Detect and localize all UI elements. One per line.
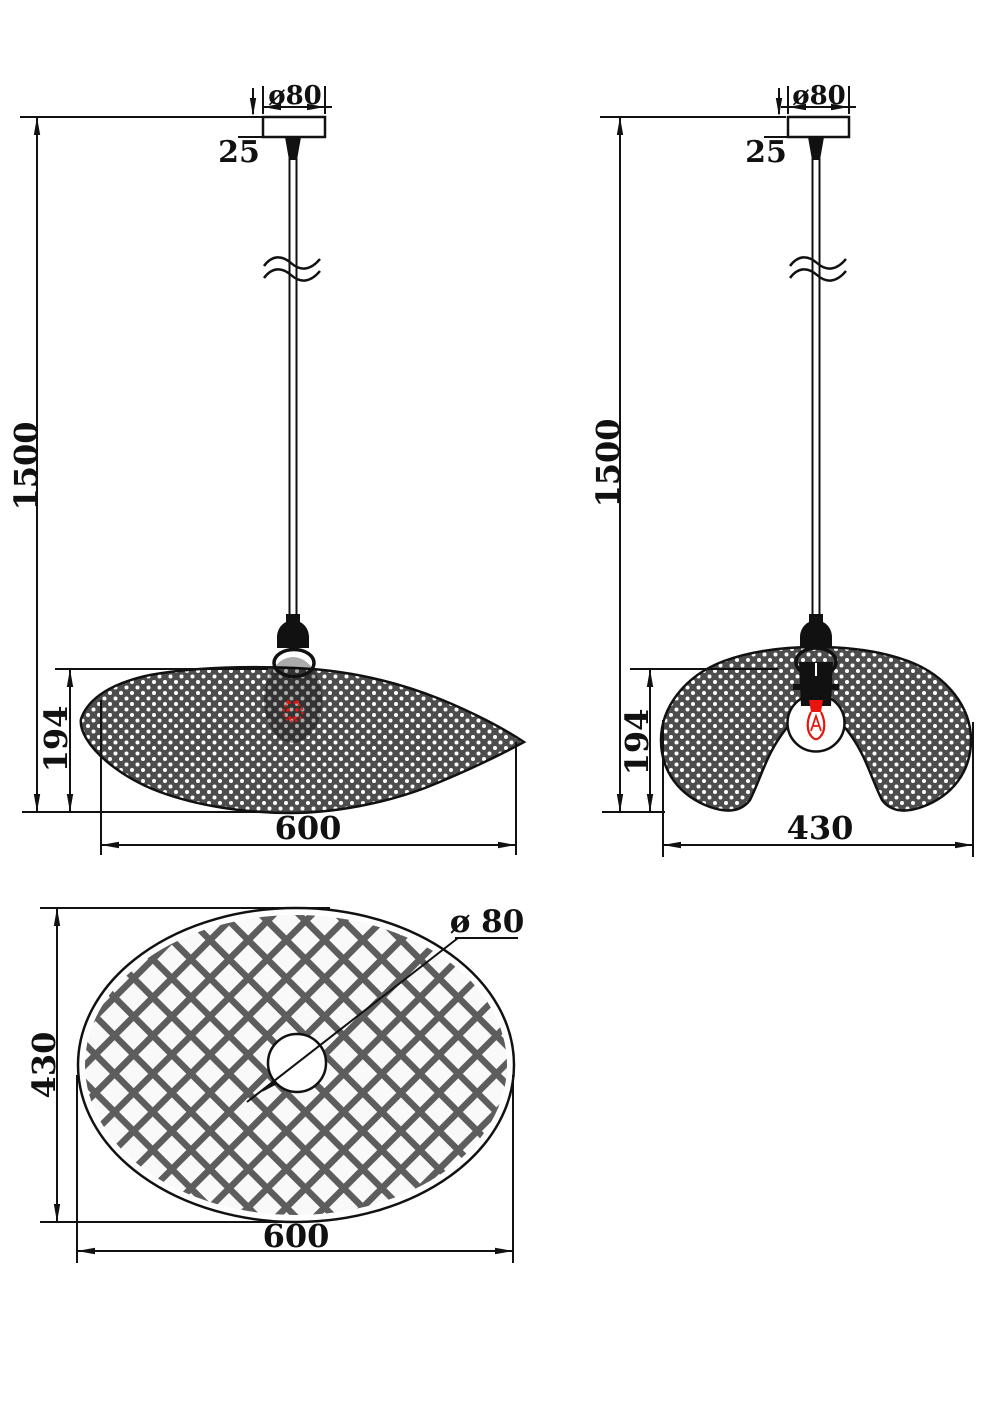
side-view: 1500 ø80 25	[589, 81, 973, 857]
front-dim-canopy-height: 25	[218, 88, 262, 170]
canopy-cord-cone	[285, 137, 301, 160]
arrowhead	[101, 842, 119, 848]
arrowhead	[54, 1204, 60, 1222]
dim-label-front-canopy-height: 25	[218, 135, 260, 170]
dim-label-side-canopy-height: 25	[745, 135, 787, 170]
break-wave	[264, 257, 320, 268]
side-dim-canopy-diameter: ø80	[781, 81, 856, 114]
front-cord-grip	[277, 614, 309, 648]
dim-label-side-430: 430	[787, 809, 854, 847]
arrowhead	[77, 1248, 95, 1254]
break-wave	[790, 269, 846, 280]
arrowhead	[955, 842, 973, 848]
arrowhead	[250, 98, 256, 116]
front-view: 1500 ø80 25	[7, 81, 524, 855]
dim-label-side-1500: 1500	[589, 418, 627, 507]
dim-label-side-194: 194	[618, 709, 656, 776]
dim-label-top-hole: ø 80	[450, 904, 525, 940]
canopy-body	[263, 117, 325, 137]
canopy-cord-cone	[808, 137, 824, 160]
dim-label-front-1500: 1500	[7, 421, 45, 510]
top-view: ø 80 430 600	[25, 904, 524, 1263]
arrowhead	[617, 117, 623, 135]
dim-label-side-canopy-diameter: ø80	[792, 81, 846, 111]
bulb-neck	[809, 700, 823, 712]
arrowhead	[54, 908, 60, 926]
break-wave	[790, 257, 846, 268]
side-cable-break-icon	[790, 257, 846, 280]
front-canopy	[263, 117, 325, 160]
side-cable	[813, 158, 820, 618]
arrowhead	[67, 794, 73, 812]
arrowhead	[34, 117, 40, 135]
dim-label-top-430: 430	[25, 1032, 63, 1099]
drawing-canvas: 1500 ø80 25	[0, 0, 992, 1403]
arrowhead	[647, 794, 653, 812]
arrowhead	[617, 794, 623, 812]
dim-label-front-600: 600	[275, 809, 342, 847]
break-wave	[264, 269, 320, 280]
arrowhead	[663, 842, 681, 848]
socket-side-tab	[831, 684, 839, 690]
side-cord-grip	[800, 614, 832, 648]
side-dim-canopy-height: 25	[745, 88, 787, 170]
arrowhead	[34, 794, 40, 812]
front-dim-canopy-diameter: ø80	[263, 81, 332, 114]
arrowhead	[498, 842, 516, 848]
dim-label-top-600: 600	[263, 1217, 330, 1255]
front-cable	[290, 158, 297, 618]
front-cable-break-icon	[264, 257, 320, 280]
arrowhead	[495, 1248, 513, 1254]
dim-label-front-canopy-diameter: ø80	[268, 81, 322, 111]
socket-side-tab	[793, 684, 801, 690]
dim-label-front-194: 194	[37, 706, 75, 773]
arrowhead	[67, 669, 73, 687]
side-canopy	[788, 117, 849, 160]
arrowhead	[647, 669, 653, 687]
technical-drawing-page: 1500 ø80 25	[0, 0, 992, 1403]
canopy-body	[788, 117, 849, 137]
